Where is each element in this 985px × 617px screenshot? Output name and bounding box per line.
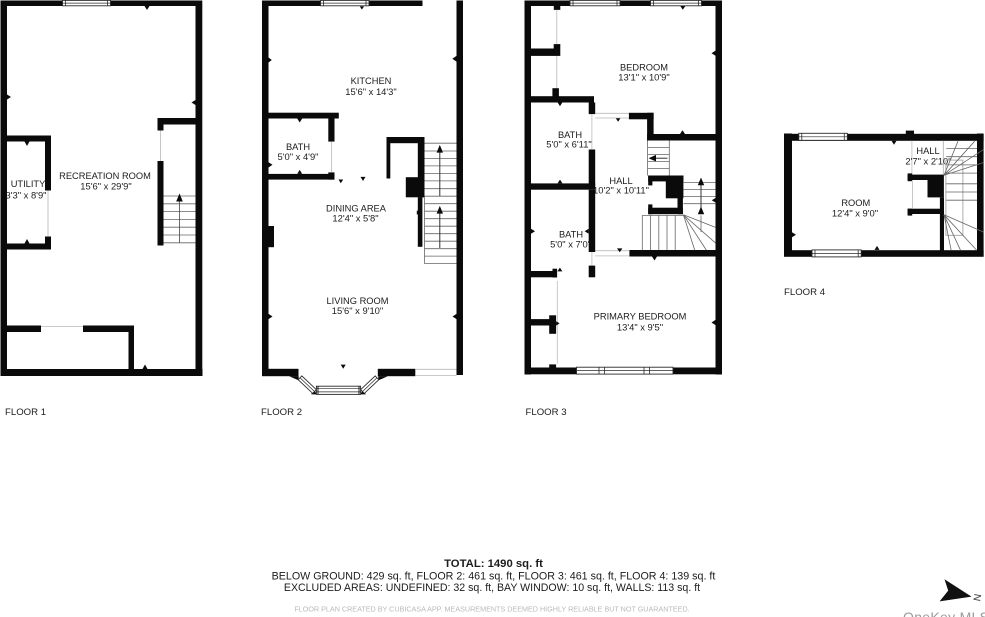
svg-text:2'7" x 2'10": 2'7" x 2'10" [905, 155, 951, 166]
svg-text:FLOOR 3: FLOOR 3 [526, 407, 567, 418]
svg-text:ROOM: ROOM [841, 198, 870, 208]
svg-text:UTILITY: UTILITY [11, 179, 46, 189]
svg-text:BELOW GROUND: 429 sq. ft, FLOO: BELOW GROUND: 429 sq. ft, FLOOR 2: 461 s… [272, 571, 716, 583]
svg-text:12'4" x 5'8": 12'4" x 5'8" [332, 212, 378, 223]
svg-text:13'1" x 10'9": 13'1" x 10'9" [618, 71, 669, 82]
svg-text:15'6" x 9'10": 15'6" x 9'10" [332, 305, 383, 316]
svg-text:TOTAL: 1490 sq. ft: TOTAL: 1490 sq. ft [444, 558, 543, 570]
svg-text:15'6" x 29'9": 15'6" x 29'9" [80, 181, 131, 192]
svg-text:5'0" x 7'0": 5'0" x 7'0" [550, 238, 591, 249]
svg-text:OneKey MLS: OneKey MLS [903, 609, 985, 617]
svg-text:FLOOR 2: FLOOR 2 [261, 407, 302, 418]
svg-text:EXCLUDED AREAS: UNDEFINED: 32: EXCLUDED AREAS: UNDEFINED: 32 sq. ft, BA… [284, 582, 700, 594]
svg-text:RECREATION ROOM: RECREATION ROOM [59, 171, 151, 181]
svg-text:10'2" x 10'11": 10'2" x 10'11" [593, 185, 649, 196]
svg-text:5'0" x 4'9": 5'0" x 4'9" [278, 151, 319, 162]
svg-text:FLOOR 4: FLOOR 4 [784, 287, 826, 298]
svg-text:5'0" x 6'11": 5'0" x 6'11" [546, 139, 592, 150]
svg-text:PRIMARY BEDROOM: PRIMARY BEDROOM [594, 312, 687, 322]
svg-text:13'4" x 9'5": 13'4" x 9'5" [617, 321, 663, 332]
svg-text:12'4" x 9'0": 12'4" x 9'0" [832, 207, 878, 218]
svg-text:FLOOR PLAN CREATED BY CUBICASA: FLOOR PLAN CREATED BY CUBICASA APP. MEAS… [294, 605, 689, 614]
svg-text:KITCHEN: KITCHEN [351, 76, 392, 86]
svg-text:15'6" x 14'3": 15'6" x 14'3" [345, 86, 396, 97]
svg-text:FLOOR 1: FLOOR 1 [5, 407, 46, 418]
svg-text:3'3" x 8'9": 3'3" x 8'9" [6, 190, 47, 201]
